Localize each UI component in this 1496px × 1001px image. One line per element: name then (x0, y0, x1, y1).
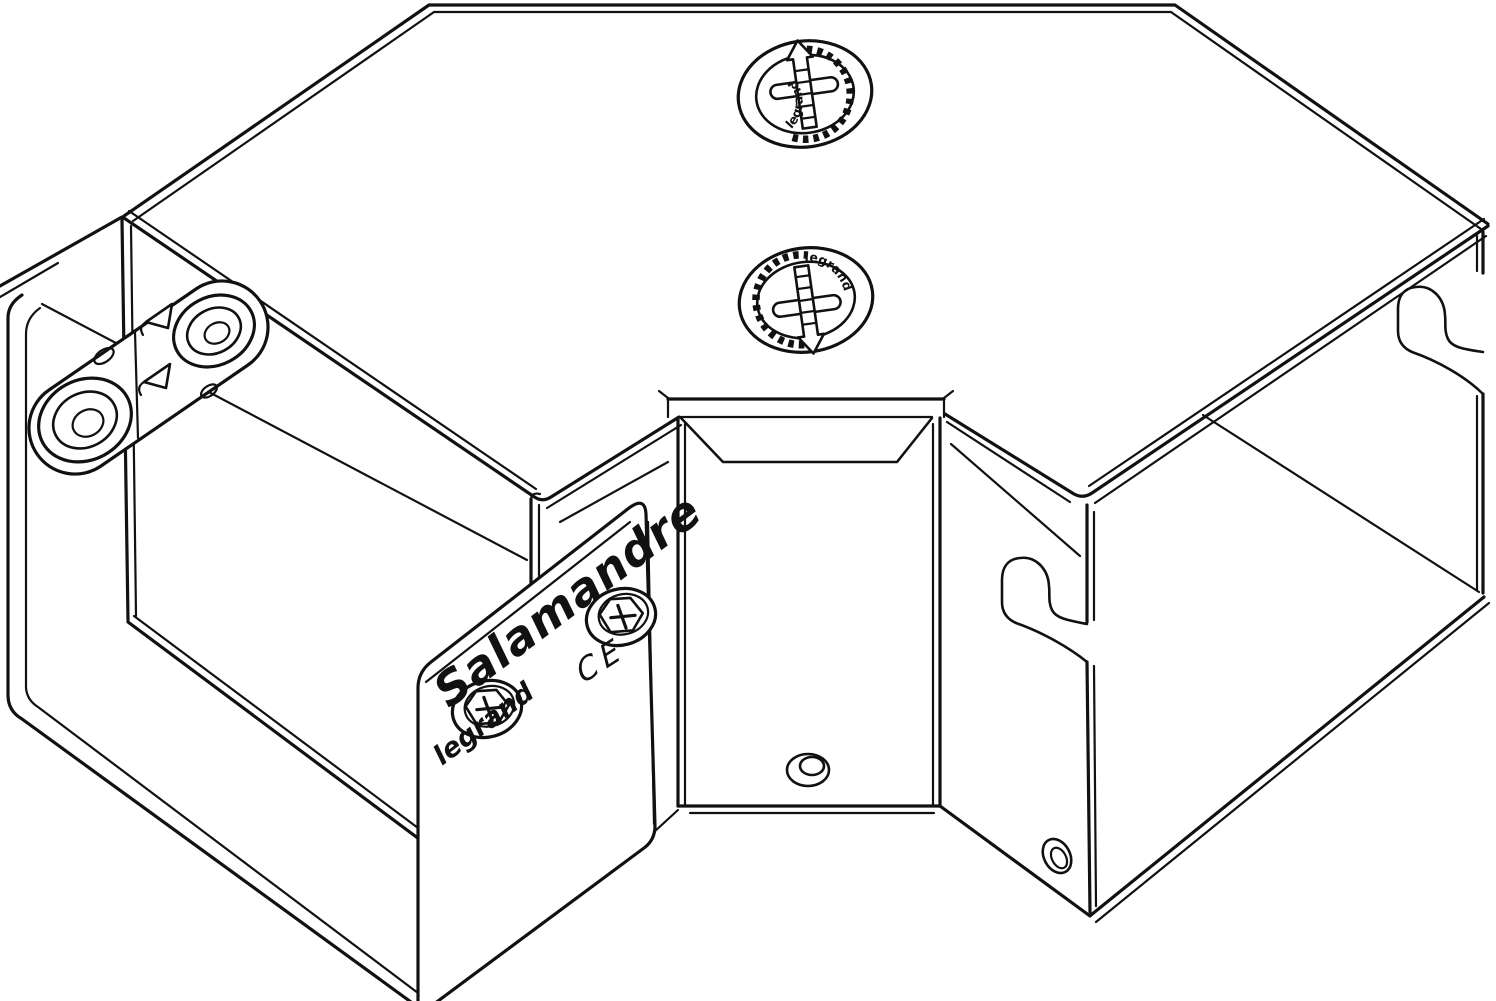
edge-line (944, 391, 953, 398)
lid-fastener-bottom: legrand (732, 239, 879, 363)
edge-line (1203, 415, 1479, 592)
edge-line (1087, 662, 1090, 912)
edge-line (654, 810, 678, 832)
chamfer-line (951, 444, 1080, 556)
edge-line (1096, 603, 1489, 922)
edge-line (0, 217, 122, 286)
hook-cutout-right-wall (1398, 287, 1483, 394)
technical-drawing-page: Salamandre CE legrand legrand legrand (0, 0, 1496, 1001)
edge-line (134, 616, 465, 863)
direction-arrow-icon (146, 304, 172, 328)
edge-line (1089, 219, 1484, 486)
lid-fastener-top: legrand (731, 31, 879, 156)
edge-line (945, 226, 1488, 496)
edge-line (947, 422, 1070, 502)
edge-line (1095, 236, 1486, 503)
edge-line (1091, 597, 1484, 915)
edge-line (1094, 666, 1096, 906)
chamfer-line (681, 418, 932, 462)
dimple-hole-icon (800, 757, 824, 775)
right-arm (1037, 232, 1489, 922)
hook-cutout-inner-wall (1002, 558, 1087, 662)
cover-plate: Salamandre CE legrand (418, 483, 711, 1001)
wall-hole-icon (1037, 834, 1077, 878)
trunking-flat-angle-drawing: Salamandre CE legrand legrand legrand (0, 0, 1496, 1001)
edge-line (659, 391, 668, 398)
